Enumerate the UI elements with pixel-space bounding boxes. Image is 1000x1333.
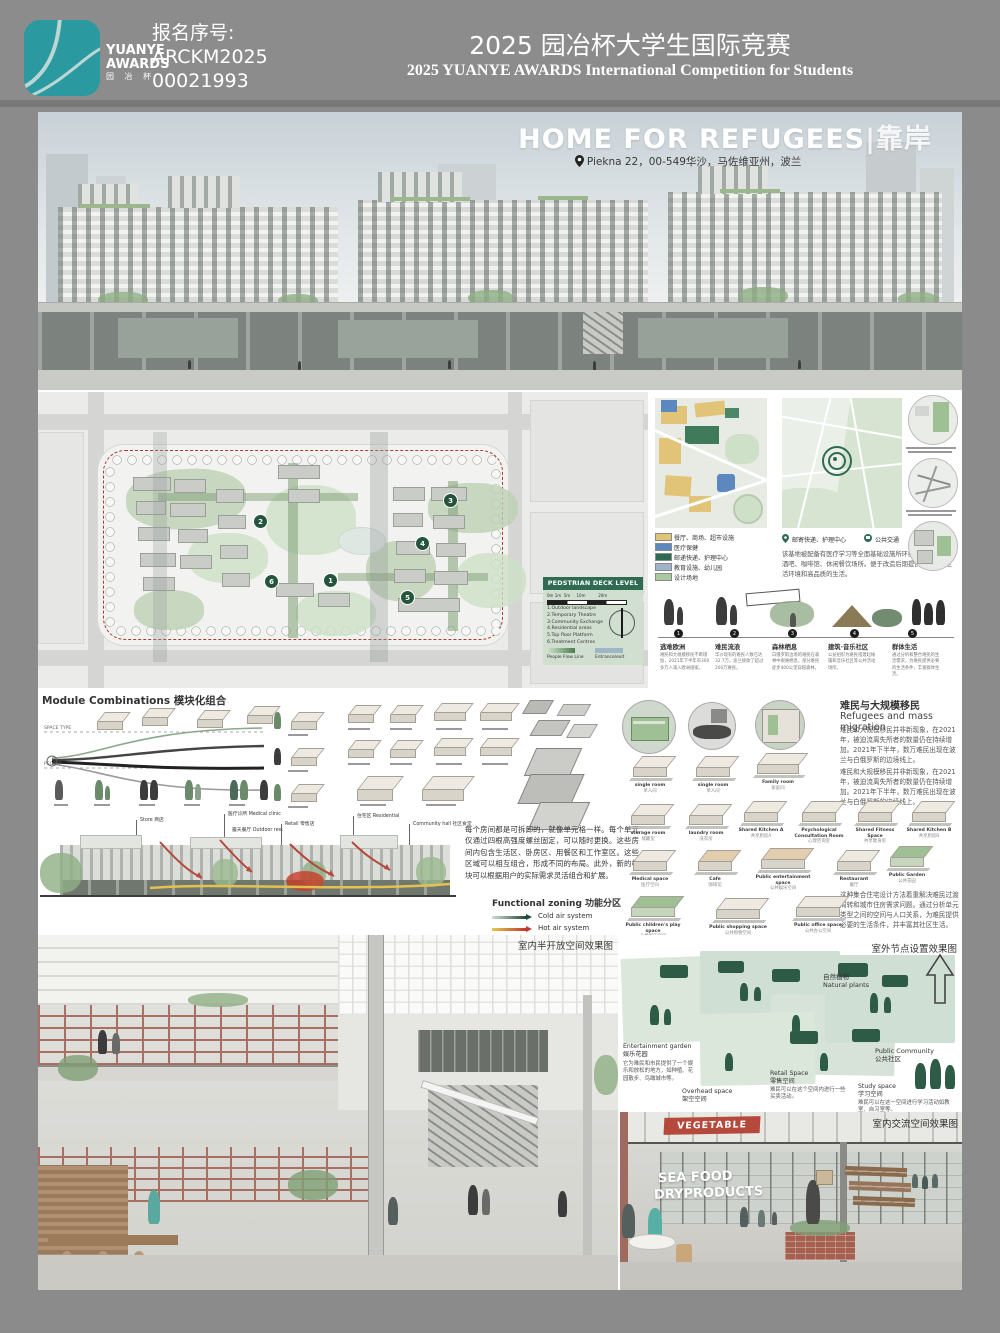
room-module: Restaurant餐厅 xyxy=(830,850,878,888)
green-roof xyxy=(80,204,150,208)
room-module: Public shopping space公共购物空间 xyxy=(707,898,769,935)
housing-cluster xyxy=(358,200,648,302)
plan-legend-body: 0m 1m 5m 10m 20m 1.Outdoor landscape 2.T… xyxy=(543,590,643,665)
combination-module xyxy=(355,776,395,801)
cafe-chair xyxy=(676,1244,692,1264)
refugee-timeline: 1 2 3 4 5 逃难欧洲 难民流浪 森林栖息 建筑·音乐社区 群体生活 难民… xyxy=(650,585,962,688)
indoor-caption: 室内交流空间效果图 xyxy=(852,1116,958,1130)
person-type xyxy=(140,780,148,800)
legend-swatch xyxy=(655,543,672,551)
hot-air-label: Hot air system xyxy=(538,924,589,932)
study-space-label: Study space 学习空间 难民可以在这一空间进行学习活动如教室、自习室等… xyxy=(858,1083,954,1112)
room-module: Family room家庭间 xyxy=(748,753,808,791)
person-silhouette xyxy=(468,1185,478,1215)
refugee-child-figure xyxy=(677,607,683,625)
stage-dot-2: 2 xyxy=(730,629,739,638)
truss-line xyxy=(620,1142,962,1144)
room-module: storage room储藏室 xyxy=(622,804,674,842)
atrium-stair xyxy=(428,1085,538,1167)
project-location: Piekna 22，00-549华沙，马佐维亚州，波兰 xyxy=(478,154,898,169)
brick-planter xyxy=(785,1232,855,1260)
overhead-space-label: Overhead space 架空空间 xyxy=(682,1088,732,1104)
indoor-market-render: VEGETABLE SEA FOOD DRYPRODUCTS 室内交流空间效果图 xyxy=(620,1112,962,1290)
exploded-axon xyxy=(520,700,600,830)
building xyxy=(222,573,250,587)
speech-bubble xyxy=(790,1031,818,1044)
tent xyxy=(832,605,872,627)
north-compass-icon xyxy=(609,610,635,636)
building xyxy=(318,593,350,607)
room-module: laundry room洗衣房 xyxy=(681,804,731,842)
plan-legend: PEDSTRIAN DECK LEVEL FLOOR 0m 1m 5m 10m … xyxy=(543,577,643,665)
context-analysis: 餐厅、商场、超市设施 医疗保健 邮递快递、护理中心 教育设施、幼儿园 设计场地 xyxy=(650,392,962,688)
building xyxy=(178,529,208,543)
pedestrian-silhouette xyxy=(448,360,451,369)
logo-curve xyxy=(24,20,100,96)
legend-label: 医疗保健 xyxy=(674,543,698,552)
speech-bubble xyxy=(772,969,800,982)
refugee-figure xyxy=(924,603,933,625)
building xyxy=(393,513,423,527)
legend-label: 邮递快递、护理中心 xyxy=(674,553,728,562)
reg-number2: 00021993 xyxy=(152,70,268,94)
room-module: Public Garden公共花园 xyxy=(881,846,933,884)
figure-green xyxy=(870,993,878,1013)
plan-badge-1: 1 xyxy=(323,573,338,588)
figure-green xyxy=(725,1053,733,1071)
building xyxy=(288,489,320,503)
modules-band: Module Combinations 模块化组合 SPACE TYPE PEO… xyxy=(38,688,962,935)
section-label-retail: Retail 零售店 xyxy=(285,820,314,827)
person-type-singles xyxy=(55,780,63,800)
person-silhouette xyxy=(758,1210,765,1227)
competition-title-zh: 2025 园冶杯大学生国际竞赛 xyxy=(320,26,940,62)
room-module: single room单人间 xyxy=(685,756,741,794)
crossing-road xyxy=(153,432,167,662)
pin-icon xyxy=(782,534,789,543)
public-community-label: Public Community 公共社区 xyxy=(875,1047,934,1064)
plan-badge-6: 6 xyxy=(264,574,279,589)
planter-greenery xyxy=(790,1220,850,1236)
legend-label: 公共交通 xyxy=(875,535,899,544)
entrance-label: Entrance/exit xyxy=(595,655,624,660)
storefront-glass xyxy=(338,320,478,358)
room-module: Shared Kitchen A共享厨房A xyxy=(733,801,789,839)
refugees-title-zh: 难民与大规模移民 xyxy=(840,697,920,712)
room-module: Cafe咖啡馆 xyxy=(691,850,739,888)
context-photo-circle xyxy=(755,700,805,750)
stage-dot-4: 4 xyxy=(850,629,859,638)
stage-desc: 白俄罗斯边境的难民在森林中艰难栖息，部分难民徒步400公里穿越森林。 xyxy=(772,653,822,672)
stage-title: 建筑·音乐社区 xyxy=(828,642,868,651)
seated-person xyxy=(622,1204,635,1238)
project-title-en: HOME FOR REFUGEES xyxy=(518,124,865,155)
entertainment-garden-label: Entertainment garden 娱乐花园 它为难民和市民提供了一个娱乐… xyxy=(623,1043,697,1083)
room-module: Shared Fitness Space共享健身房 xyxy=(849,801,901,844)
person-silhouette xyxy=(558,1191,567,1217)
transit-icon xyxy=(864,534,872,542)
room-module: Shared Kitchen B共享厨房B xyxy=(903,801,955,839)
scale-ticks: 0m 1m 5m 10m 20m xyxy=(547,593,607,598)
person-type xyxy=(95,780,103,800)
building xyxy=(434,571,468,585)
module-glyph xyxy=(290,784,318,802)
yuanye-logo-icon xyxy=(24,20,100,96)
building xyxy=(394,569,426,583)
plan-badge-3: 3 xyxy=(443,493,458,508)
hot-air-arrow xyxy=(492,928,526,931)
plant xyxy=(288,1170,338,1200)
entrance-swatch xyxy=(595,648,623,653)
figure-green xyxy=(754,987,761,1001)
city-map xyxy=(782,398,902,528)
legend-item: 6.Treatment Centres xyxy=(547,640,603,647)
section-label-outdoor: 露天餐厅 Outdoor rest xyxy=(232,826,283,833)
context-block xyxy=(530,400,644,502)
green-roof xyxy=(390,197,470,201)
legend-swatch xyxy=(655,533,672,541)
building xyxy=(393,487,425,501)
housing-cluster xyxy=(58,207,338,302)
site-plan: 1 2 3 4 5 6 PEDSTRIAN DECK LEVEL FLOOR 0… xyxy=(38,392,648,688)
module-glyph xyxy=(245,706,275,724)
plan-badge-2: 2 xyxy=(253,514,268,529)
modules-title: Module Combinations 模块化组合 xyxy=(42,693,226,708)
hero-render: HOME FOR REFUGEES|靠岸 Piekna 22，00-549华沙，… xyxy=(38,112,962,390)
stage-desc: 华沙现有的难民人数已达32.7万，波兰接收了超过200万难民。 xyxy=(715,653,765,672)
stage-title: 难民流浪 xyxy=(715,642,740,651)
stage-dot-3: 3 xyxy=(788,629,797,638)
context-photo-circle xyxy=(622,700,676,754)
stage-title: 逃难欧洲 xyxy=(660,642,685,651)
legend-label: 教育设施、幼儿园 xyxy=(674,563,722,572)
floor xyxy=(38,1255,618,1290)
header-divider xyxy=(0,100,1000,107)
person-silhouette xyxy=(932,1174,938,1188)
stage-desc: 难民和大规模移民不断增加，2021年下半年有300多万人涌入欧洲国家。 xyxy=(660,653,710,672)
housing-step xyxy=(168,176,240,208)
combination-module xyxy=(345,705,377,723)
room-module: single room单人间 xyxy=(622,756,678,794)
person-type xyxy=(185,780,193,800)
housing-cluster xyxy=(668,192,942,302)
vegetable-sign-text: VEGETABLE xyxy=(677,1119,748,1131)
room-module: Medical space医疗空间 xyxy=(622,850,678,888)
legend-swatch xyxy=(655,553,672,561)
competition-title-en: 2025 YUANYE AWARDS International Competi… xyxy=(320,62,940,80)
person-silhouette xyxy=(482,1189,490,1215)
airflow-arrows xyxy=(140,838,460,896)
combination-module xyxy=(345,740,377,758)
combination-module xyxy=(432,703,468,721)
figure-green xyxy=(650,1005,659,1025)
vegetable-sign: VEGETABLE xyxy=(664,1116,761,1135)
cold-air-label: Cold air system xyxy=(538,912,592,920)
figure-green xyxy=(884,997,891,1013)
section-label-community: Community hall 社区食堂 xyxy=(413,820,472,827)
natural-plants-label: 自然植物 Natural plants xyxy=(823,973,869,990)
floor xyxy=(620,1262,962,1290)
combination-module xyxy=(478,738,514,756)
speech-bubble xyxy=(660,965,688,978)
axis-space-type: SPACE TYPE xyxy=(44,726,71,731)
module-glyph xyxy=(290,712,318,730)
facilities-map xyxy=(655,398,767,528)
legend-label: 设计场地 xyxy=(674,573,698,582)
registration-number: 报名序号: ARCKM2025 00021993 xyxy=(152,22,268,93)
plan-legend-items: 1.Outdoor landscape 2.Temporary Theatre … xyxy=(547,606,603,647)
storefront-glass xyxy=(638,318,788,358)
legend-swatch xyxy=(655,563,672,571)
legend-label: 邮寄快递、护理中心 xyxy=(792,535,846,544)
legend-label: 餐厅、商场、超市设施 xyxy=(674,533,734,542)
figure-green xyxy=(740,983,748,1001)
building xyxy=(278,465,320,479)
module-glyph xyxy=(140,708,170,726)
section-tree xyxy=(40,853,82,893)
stage-title: 群体生活 xyxy=(892,642,917,651)
person-silhouette xyxy=(388,1197,398,1225)
person-silhouette xyxy=(922,1176,928,1189)
legend-item: 1.Outdoor landscape xyxy=(547,606,603,613)
stage-title: 森林栖息 xyxy=(772,642,797,651)
plan-badge-5: 5 xyxy=(400,590,415,605)
building xyxy=(180,555,212,569)
person-silhouette xyxy=(912,1174,918,1188)
combination-module xyxy=(387,705,419,723)
room-module: Public office space公共办公空间 xyxy=(787,896,849,934)
person-type xyxy=(230,780,238,800)
care-centre-block xyxy=(685,426,719,444)
reg-label: 报名序号: xyxy=(152,22,268,46)
legend-swatch xyxy=(655,573,672,581)
building xyxy=(433,515,465,529)
reg-number1: ARCKM2025 xyxy=(152,46,268,70)
person-silhouette xyxy=(772,1212,777,1225)
site-target-marker xyxy=(822,446,852,476)
room-module: Public children's play space儿童娱乐空间 xyxy=(622,896,684,935)
up-arrow-icon xyxy=(925,953,955,1005)
person-type xyxy=(260,780,268,800)
cafe-table xyxy=(628,1234,676,1250)
cardboard-box xyxy=(816,1170,833,1185)
semi-open-caption: 室内半开放空间效果图 xyxy=(463,938,613,952)
project-title-zh: |靠岸 xyxy=(865,124,932,155)
functional-zoning-title: Functional zoning 功能分区 xyxy=(492,896,621,909)
stage-dot-1: 1 xyxy=(674,629,683,638)
seafood-sign-line1: SEA FOOD xyxy=(658,1169,733,1187)
combination-module xyxy=(387,740,419,758)
section-label-residential: 住宅区 Residential xyxy=(357,812,399,819)
refugee-figure xyxy=(716,597,727,625)
scale-bar xyxy=(547,600,627,605)
person-silhouette-teal xyxy=(148,1190,160,1224)
outdoor-stair xyxy=(583,312,623,354)
context-block xyxy=(38,432,84,644)
storefront-glass xyxy=(118,318,238,358)
semi-open-interior-render: 室内半开放空间效果图 xyxy=(38,935,618,1290)
building xyxy=(218,515,246,529)
pedestrian-silhouette xyxy=(298,361,301,370)
module-glyph xyxy=(95,712,125,730)
competition-poster: YUANYE AWARDS 园 冶 杯 报名序号: ARCKM2025 0002… xyxy=(0,0,1000,1333)
speech-bubble xyxy=(882,975,908,987)
building xyxy=(174,479,206,493)
person-carrying-box xyxy=(806,1180,820,1224)
cold-air-arrow xyxy=(492,916,526,919)
building xyxy=(170,503,206,517)
room-module: Psychological Consultation Room心理咨询室 xyxy=(791,801,847,844)
figure-green xyxy=(664,1009,671,1025)
analysis-circle xyxy=(908,521,958,571)
module-paragraph: 每个房间都是可拆卸的，就像单元格一样。每个单元仅通过四根高强度螺丝固定，可以随时… xyxy=(465,824,639,881)
header-bar: YUANYE AWARDS 园 冶 杯 报名序号: ARCKM2025 0002… xyxy=(0,0,1000,100)
outdoor-nodes-diagram: 室外节点设置效果图 自然植物 Natura xyxy=(620,935,962,1112)
pedestrian-silhouette xyxy=(593,361,596,370)
analysis-circle xyxy=(908,458,958,508)
building xyxy=(276,583,314,597)
pedestrian-silhouette xyxy=(798,360,801,369)
stage-desc: 通过分析和整合难民的生活需求，为难民提供必要的生活条件，丰富群体生活。 xyxy=(892,653,942,679)
legend-item: 2.Temporary Theatre xyxy=(547,613,603,620)
road xyxy=(508,392,522,688)
crossing-road xyxy=(370,432,388,662)
combination-module xyxy=(432,738,468,756)
tree-row xyxy=(104,465,116,630)
wood-counter xyxy=(48,1235,178,1245)
refugees-para1: 难民和大规模移民并非新现象，在2021年，被迫流离失所者的数量仍在持续增加。20… xyxy=(840,726,960,766)
section-label-store: Store 商店 xyxy=(140,816,164,823)
green-roof xyxy=(720,189,780,193)
stage-dot-5: 5 xyxy=(908,629,917,638)
plant xyxy=(594,1055,618,1095)
module-glyph xyxy=(290,748,318,766)
stage-desc: 公益组织为难民搭建起帐篷和音乐社区等公共活动场所。 xyxy=(828,653,878,672)
plan-legend-title: PEDSTRIAN DECK LEVEL FLOOR xyxy=(543,577,643,590)
atrium-window xyxy=(418,1030,548,1072)
combination-module xyxy=(478,703,514,721)
speech-bubble xyxy=(718,961,744,973)
building xyxy=(436,543,466,557)
building xyxy=(220,545,248,559)
refugee-figure xyxy=(912,599,921,625)
ceiling-beams xyxy=(38,935,338,1005)
person-silhouette xyxy=(740,1207,748,1227)
green-roof xyxy=(538,196,588,200)
location-pin-icon xyxy=(575,155,584,167)
figure-green xyxy=(820,1053,828,1071)
building xyxy=(216,489,244,503)
retail-space-label: Retail Space 零售空间 难民可以在这个空间内进行一些买卖活动。 xyxy=(770,1070,850,1102)
refugee-figure xyxy=(730,605,737,625)
plan-badge-4: 4 xyxy=(415,536,430,551)
people-flow-swatch xyxy=(547,648,575,653)
axis-people: PEOPLE xyxy=(44,762,62,767)
refugees-para3: 这种集合住宅设计方法着重解决难民过渡周转和城市住房需求问题。通过分析单元类型之间… xyxy=(840,891,960,931)
facilities-legend: 餐厅、商场、超市设施 医疗保健 邮递快递、护理中心 教育设施、幼儿园 设计场地 xyxy=(655,533,777,583)
project-title: HOME FOR REFUGEES|靠岸 xyxy=(518,117,932,156)
section-label-medical: 医疗诊所 Medical clinic xyxy=(228,810,281,817)
people-flow-label: People Flow Line xyxy=(547,655,584,660)
green-patch xyxy=(134,590,204,630)
street-ground xyxy=(38,370,962,390)
refugee-figure xyxy=(936,600,945,625)
column xyxy=(583,995,592,1290)
room-module: Public entertainment space公共娱乐空间 xyxy=(752,848,814,891)
green-corridor xyxy=(158,493,358,501)
person-silhouette xyxy=(112,1033,120,1054)
combination-module xyxy=(420,776,466,801)
refugee-figure xyxy=(664,599,674,625)
module-glyph xyxy=(195,710,225,728)
column xyxy=(368,935,384,1290)
person-silhouette xyxy=(98,1030,107,1054)
analysis-circle xyxy=(908,395,958,445)
hanging-plant xyxy=(188,993,248,1007)
plant xyxy=(58,1055,98,1081)
context-photo-circle xyxy=(688,702,736,750)
speech-bubble xyxy=(852,1029,880,1042)
pedestrian-silhouette xyxy=(188,360,191,369)
location-text: Piekna 22，00-549华沙，马佐维亚州，波兰 xyxy=(587,156,802,168)
